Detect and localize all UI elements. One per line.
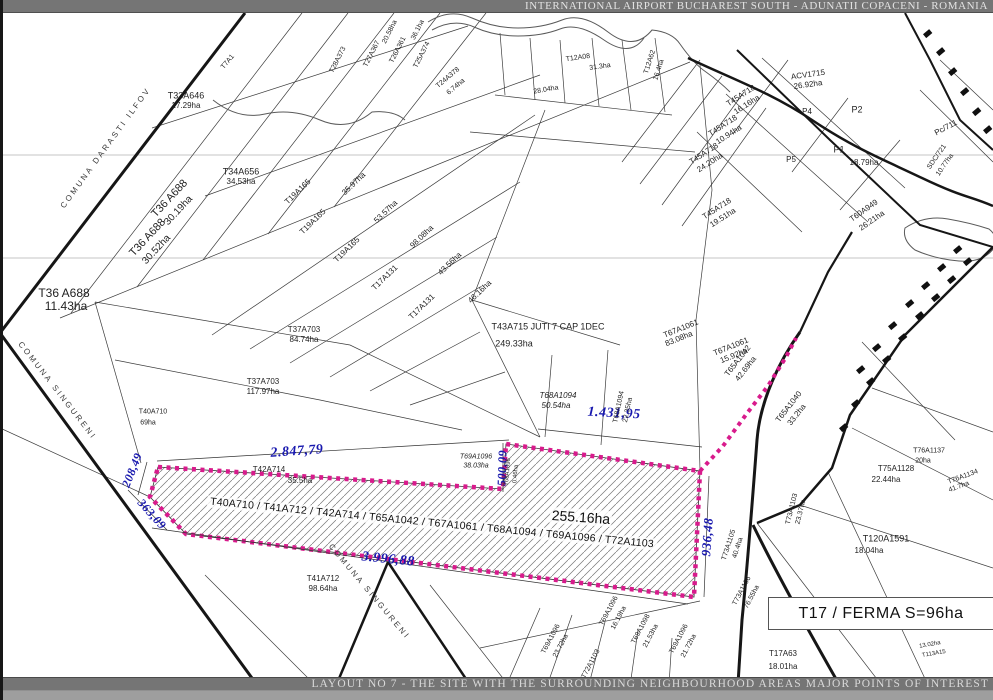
parcel-label: T17A131 xyxy=(371,264,400,292)
parcel-label: 13.02ha xyxy=(919,640,941,650)
municipality-label: COMUNA DARASTI ILFOV xyxy=(59,86,152,210)
parcel-label: T76A1137 xyxy=(913,448,945,455)
parcel-label: 38.03ha xyxy=(463,463,488,470)
parcel-label: 98.64ha xyxy=(309,585,338,593)
dimension-label: 2.847,79 xyxy=(270,443,324,461)
parcel-label: 69ha xyxy=(140,420,156,427)
parcel-label: T36 A688 xyxy=(38,287,89,299)
parcel-label: 46.16ha xyxy=(467,279,493,305)
footer-banner: LAYOUT NO 7 - THE SITE WITH THE SURROUND… xyxy=(0,677,993,691)
parcel-label: T37A703 xyxy=(247,378,279,386)
parcel-label: 34.53ha xyxy=(227,178,256,186)
parcel-label: P1 xyxy=(833,146,844,155)
parcel-label: T19A165 xyxy=(299,208,328,236)
ferma-label-box: T17 / FERMA S=96ha xyxy=(768,597,993,630)
header-banner: INTERNATIONAL AIRPORT BUCHAREST SOUTH - … xyxy=(0,0,993,13)
footer-title: LAYOUT NO 7 - THE SITE WITH THE SURROUND… xyxy=(311,678,989,690)
parcel-label: 11.43ha xyxy=(45,300,88,312)
parcel-label: P5 xyxy=(786,156,796,164)
parcel-label: 20ha xyxy=(915,458,931,465)
left-border xyxy=(0,0,3,700)
parcel-label: 26.92ha xyxy=(793,79,823,91)
parcel-label: T75A1128 xyxy=(878,465,914,473)
parcel-label: T19A165 xyxy=(333,236,362,264)
parcel-label: T37A703 xyxy=(288,326,320,334)
parcel-label: 43.56ha xyxy=(437,251,463,277)
parcel-label: T25A374 xyxy=(412,41,431,70)
parcel-label: T42A714 xyxy=(253,466,285,474)
parcel-label: T34A656 xyxy=(223,168,260,177)
dimension-label: 3.996,88 xyxy=(361,550,415,569)
parcel-label: T28A373 xyxy=(328,46,347,75)
parcel-label: 98.08ha xyxy=(409,224,435,250)
parcel-label: 50.54ha xyxy=(542,402,571,410)
parcel-label: T12A08 xyxy=(565,53,590,63)
parcel-label: T69A1096 xyxy=(460,454,492,461)
parcel-label: 249.33ha xyxy=(495,340,533,349)
parcel-label: Pc/711 xyxy=(933,119,958,137)
parcel-label: P2 xyxy=(851,106,862,115)
header-title: INTERNATIONAL AIRPORT BUCHAREST SOUTH - … xyxy=(525,1,988,12)
footer-strip xyxy=(0,691,993,700)
parcel-label: 117.97ha xyxy=(247,388,280,396)
parcel-label: 36.1ha xyxy=(410,19,426,41)
parcel-label: 0.46ha xyxy=(512,465,520,484)
parcel-label: T72A1103 xyxy=(580,648,601,679)
parcel-label: P4 xyxy=(802,108,812,116)
dimension-label: 363,09 xyxy=(135,497,168,532)
parcel-label: 22.44ha xyxy=(872,476,901,484)
parcel-label: 84.74ha xyxy=(290,336,319,344)
parcel-label: 35.5ha xyxy=(288,477,312,485)
parcel-label: T68A1096 xyxy=(504,458,512,486)
parcel-label: T26A361 xyxy=(388,36,407,65)
municipality-label: COMUNA SINGURENI xyxy=(16,341,97,442)
parcel-label: 17.29ha xyxy=(172,102,201,110)
label-layer: 2.847,791.431,953.996,88500,09936,48208,… xyxy=(0,0,993,700)
parcel-label: T41A712 xyxy=(307,575,339,583)
parcel-label: T33A646 xyxy=(168,92,205,101)
parcel-label: 18.01ha xyxy=(769,663,798,671)
layout-sheet: 2.847,791.431,953.996,88500,09936,48208,… xyxy=(0,0,993,700)
parcel-label: T27A367 xyxy=(362,40,381,69)
parcel-label: 53.57ha xyxy=(373,199,399,225)
parcel-label: T40A710 xyxy=(139,409,167,416)
parcel-label: T7A1 xyxy=(220,53,236,70)
dimension-label: 208,49 xyxy=(120,451,145,489)
parcel-label: T17A63 xyxy=(769,650,797,658)
parcel-label: 18.04ha xyxy=(855,547,884,555)
parcel-label: T120A1591 xyxy=(863,535,910,544)
ferma-label: T17 / FERMA S=96ha xyxy=(798,605,963,623)
parcel-label: 31.3ha xyxy=(589,62,611,72)
dimension-label: 936,48 xyxy=(699,517,715,557)
parcel-label: 28.04ha xyxy=(533,84,559,95)
parcel-label: T113A15 xyxy=(922,649,947,659)
parcel-label: 20.58ha xyxy=(381,19,399,45)
parcel-label: T19A165 xyxy=(284,178,313,206)
parcel-label: 35.97ha xyxy=(341,171,367,197)
parcel-label: T68A1094 xyxy=(540,392,577,400)
parcel-label: T43A715 JUTI 7 CAP 1DEC xyxy=(492,323,605,332)
parcel-label: T17A131 xyxy=(408,293,437,321)
parcel-label: 16.4ha xyxy=(652,59,665,82)
parcel-label: 18.79ha xyxy=(850,159,879,167)
